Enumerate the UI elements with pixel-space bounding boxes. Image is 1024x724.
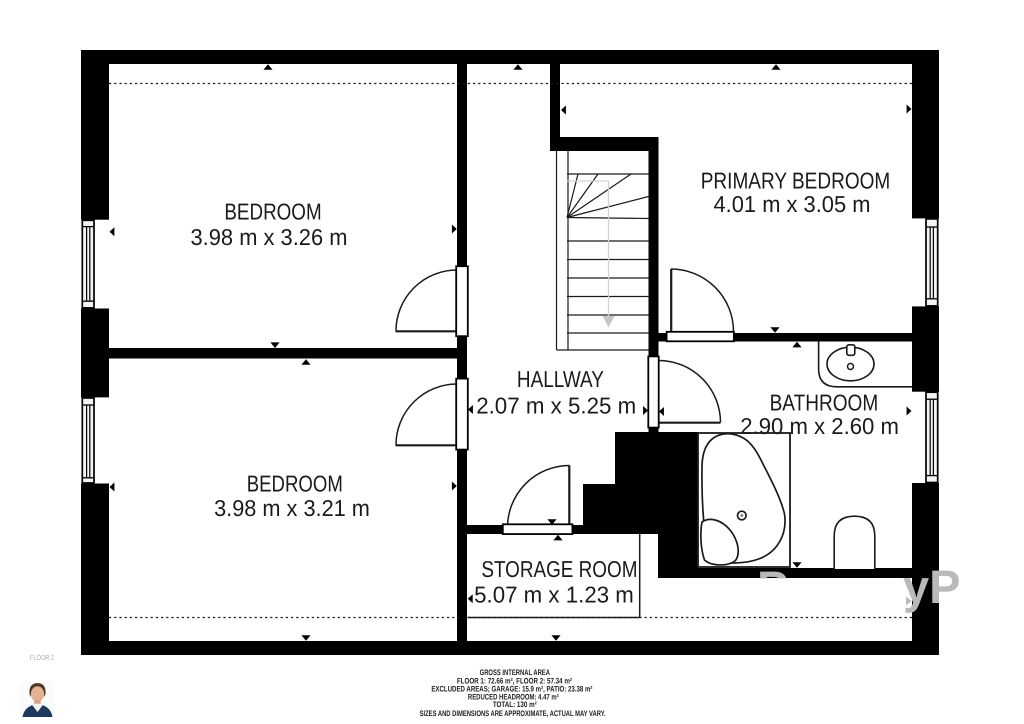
svg-text:GROSS INTERNAL AREA: GROSS INTERNAL AREA xyxy=(480,668,550,677)
svg-text:STORAGE ROOM: STORAGE ROOM xyxy=(481,556,637,582)
svg-text:3.98 m x 3.26 m: 3.98 m x 3.26 m xyxy=(191,224,348,250)
svg-text:SIZES AND DIMENSIONS ARE APPRO: SIZES AND DIMENSIONS ARE APPROXIMATE, AC… xyxy=(420,709,606,718)
svg-text:BATHROOM: BATHROOM xyxy=(770,390,879,416)
svg-text:FLOOR 2: FLOOR 2 xyxy=(30,653,54,662)
svg-text:4.01 m x 3.05 m: 4.01 m x 3.05 m xyxy=(714,191,871,217)
svg-text:5.07 m x 1.23 m: 5.07 m x 1.23 m xyxy=(474,581,634,607)
svg-text:HALLWAY: HALLWAY xyxy=(517,366,604,392)
svg-text:BEDROOM: BEDROOM xyxy=(224,198,321,224)
svg-text:2.07 m x 5.25 m: 2.07 m x 5.25 m xyxy=(476,393,636,419)
svg-text:yP: yP xyxy=(903,560,961,613)
svg-text:3.98 m x 3.21 m: 3.98 m x 3.21 m xyxy=(214,495,370,521)
svg-text:PRIMARY BEDROOM: PRIMARY BEDROOM xyxy=(701,168,891,194)
svg-text:TOTAL: 130 m²: TOTAL: 130 m² xyxy=(493,700,537,709)
svg-text:BEDROOM: BEDROOM xyxy=(247,471,343,497)
svg-text:2.90 m x 2.60 m: 2.90 m x 2.60 m xyxy=(740,413,899,439)
